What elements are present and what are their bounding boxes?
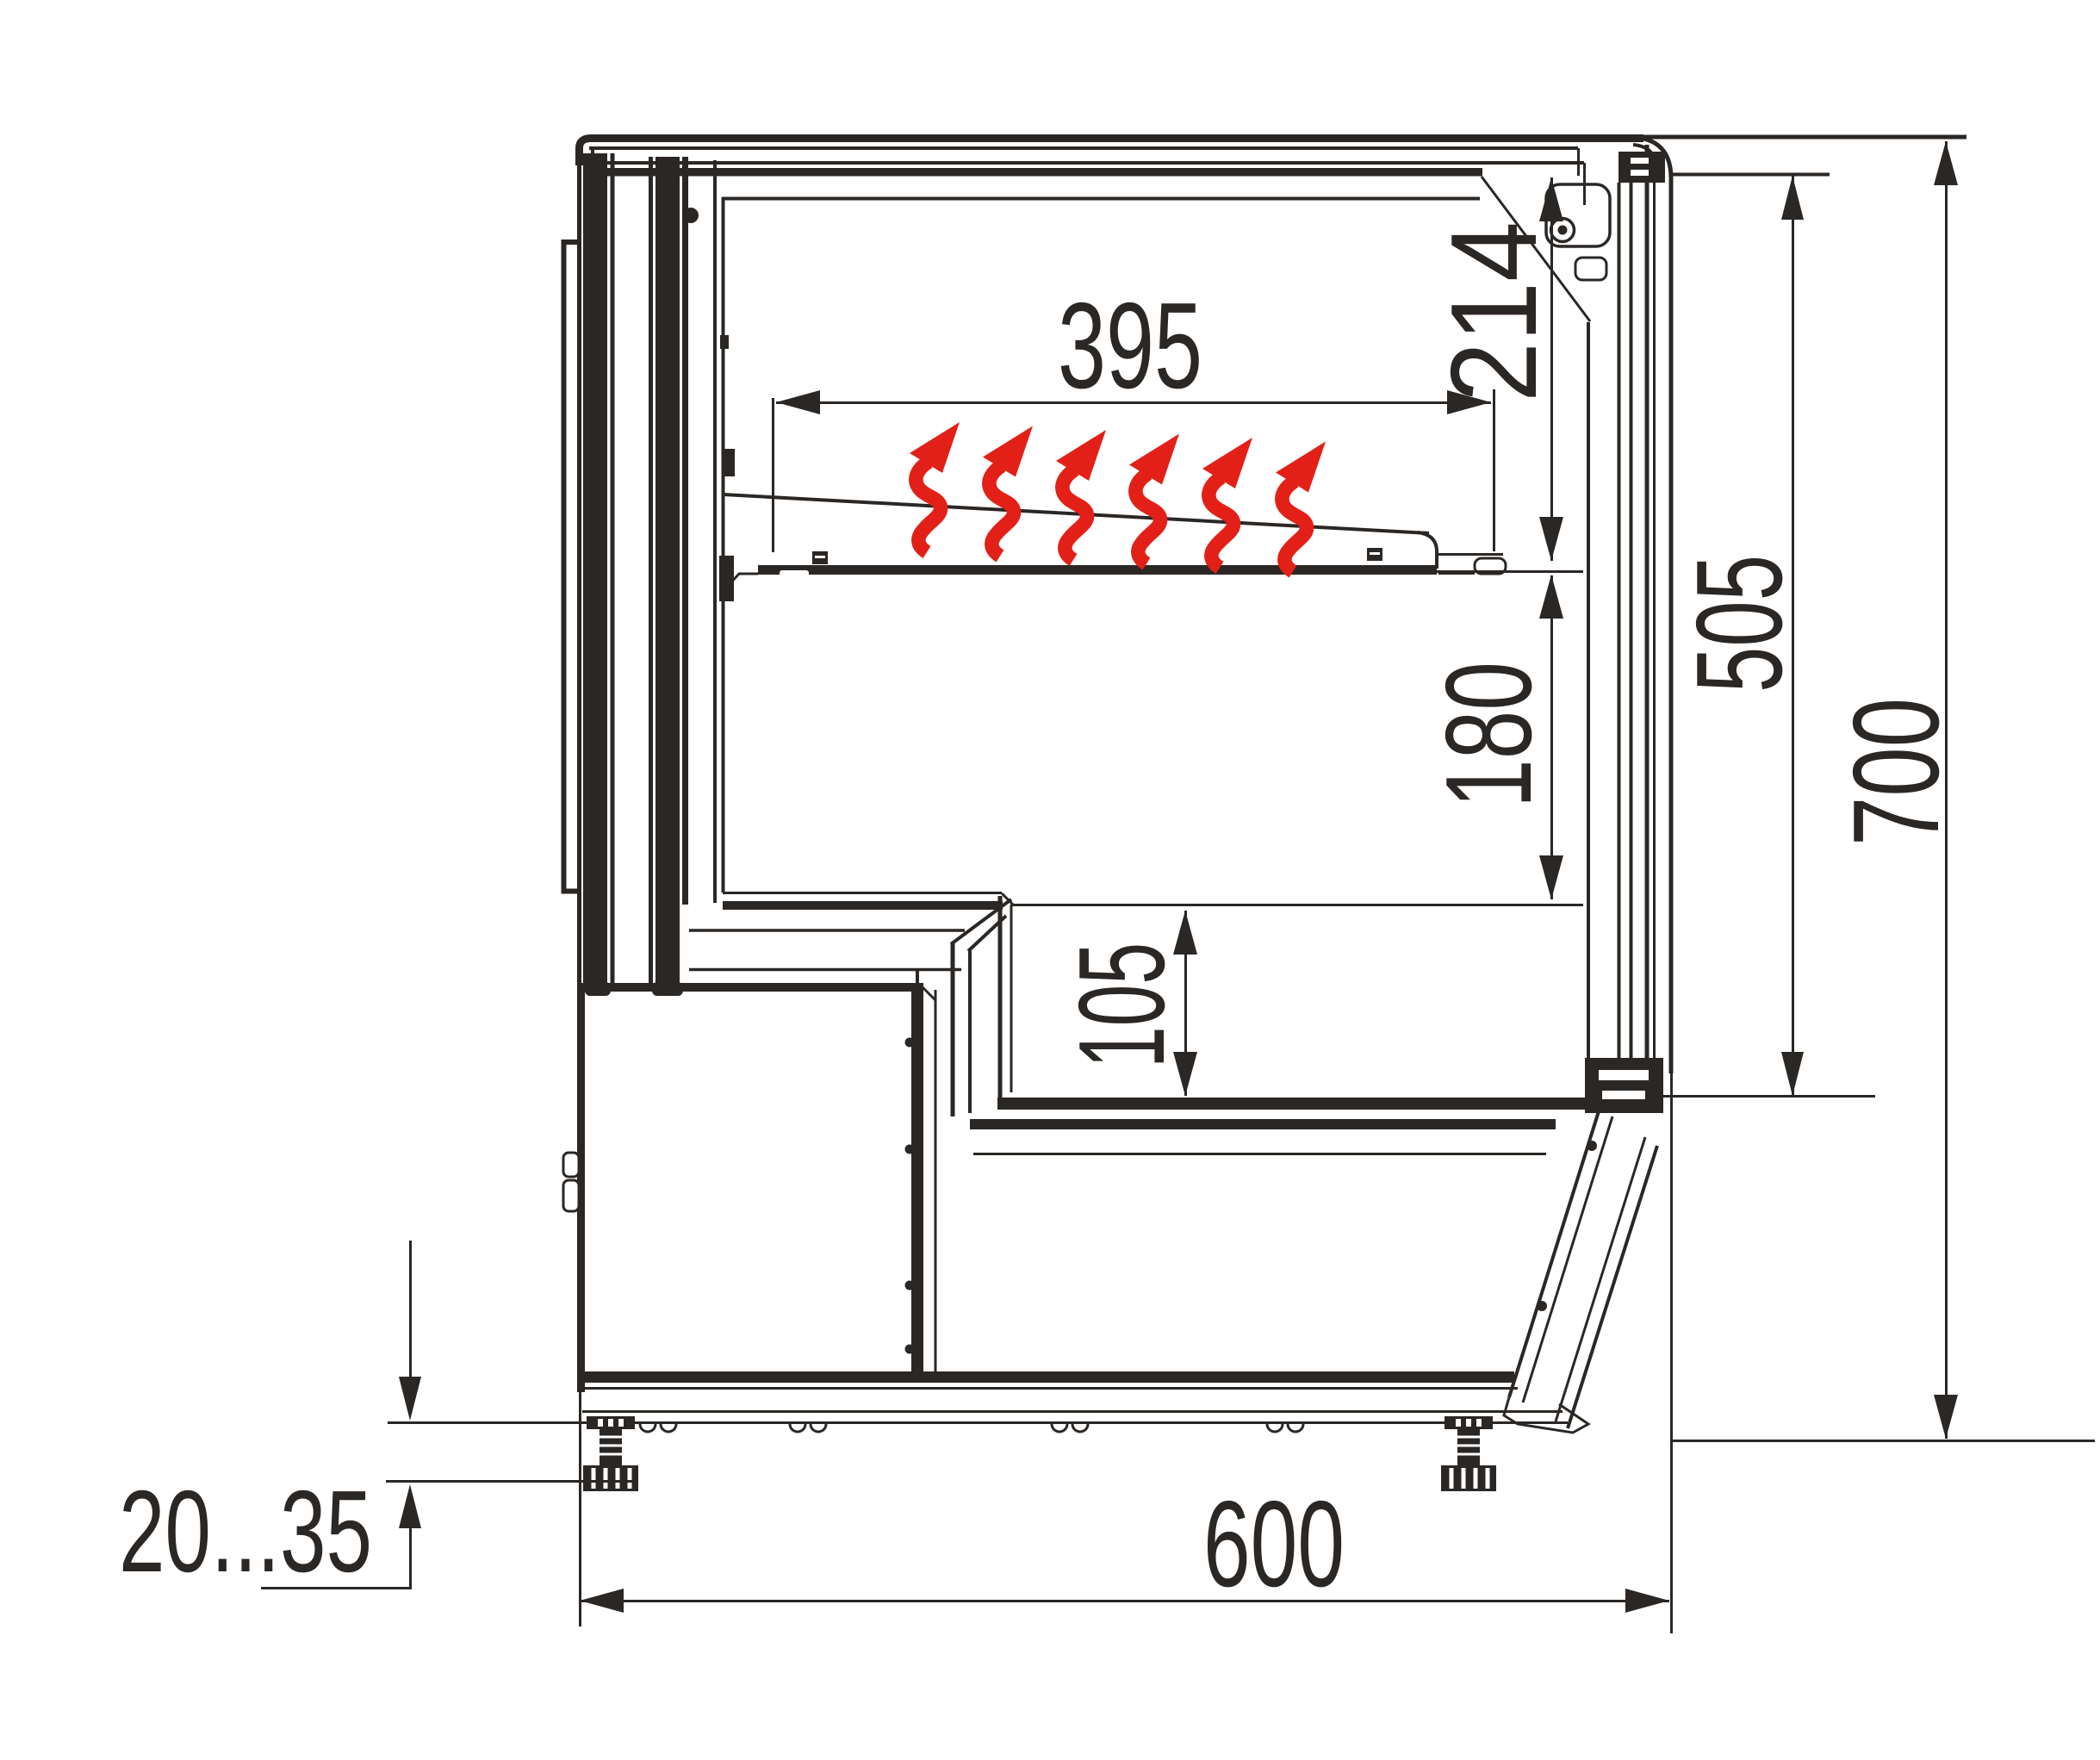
svg-text:600: 600 [1203, 1476, 1345, 1613]
svg-text:105: 105 [1053, 942, 1190, 1068]
svg-text:505: 505 [1671, 555, 1808, 693]
svg-text:395: 395 [1058, 277, 1202, 414]
svg-text:20...35: 20...35 [119, 1466, 372, 1596]
svg-text:700: 700 [1828, 698, 1965, 846]
svg-text:180: 180 [1420, 662, 1557, 808]
svg-text:214: 214 [1426, 221, 1563, 402]
